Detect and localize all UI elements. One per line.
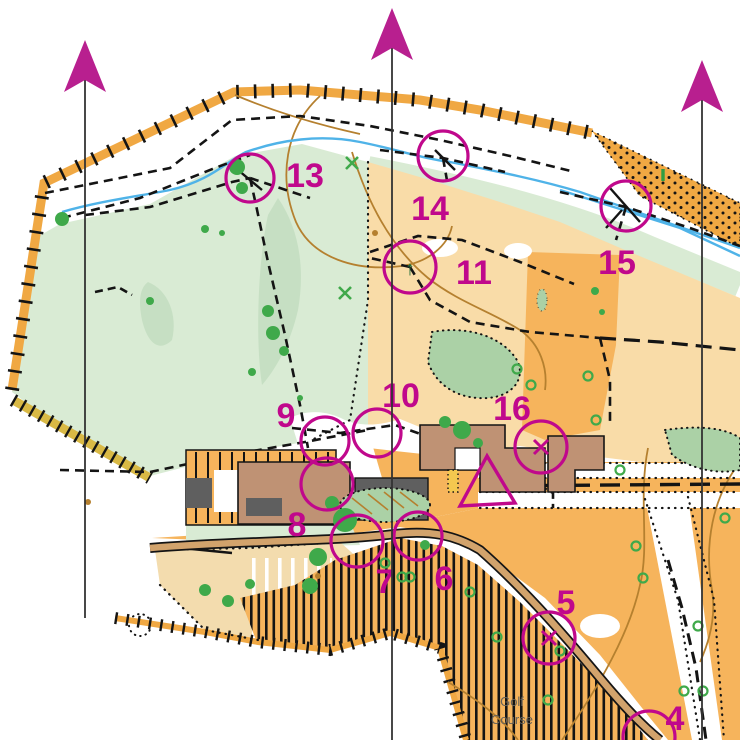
orienteering-map: 45678910↑1113141516 GolfCourse [0,0,740,740]
control-number: 14 [411,190,449,228]
control-number: 13 [286,157,324,195]
building-gray-small [246,498,282,516]
control-number: 10 [382,377,420,415]
control-number: 16 [493,390,531,428]
area-label-text: Course [491,712,533,727]
tree-symbol: ↑ [405,258,415,280]
building-gray-west [186,478,212,508]
terrain-base [0,0,740,740]
control-number: 11 [456,254,492,292]
control-number: 15 [598,244,636,282]
area-label-text: Golf [500,694,524,709]
map-canvas: 45678910↑1113141516 GolfCourse [0,0,740,740]
building-yellow-detail [448,470,458,492]
control-number: 4 [666,700,685,738]
control-number: 9 [277,397,296,435]
control-number: 5 [557,584,576,622]
control-number: 6 [435,560,454,598]
control-number: 8 [288,506,307,544]
